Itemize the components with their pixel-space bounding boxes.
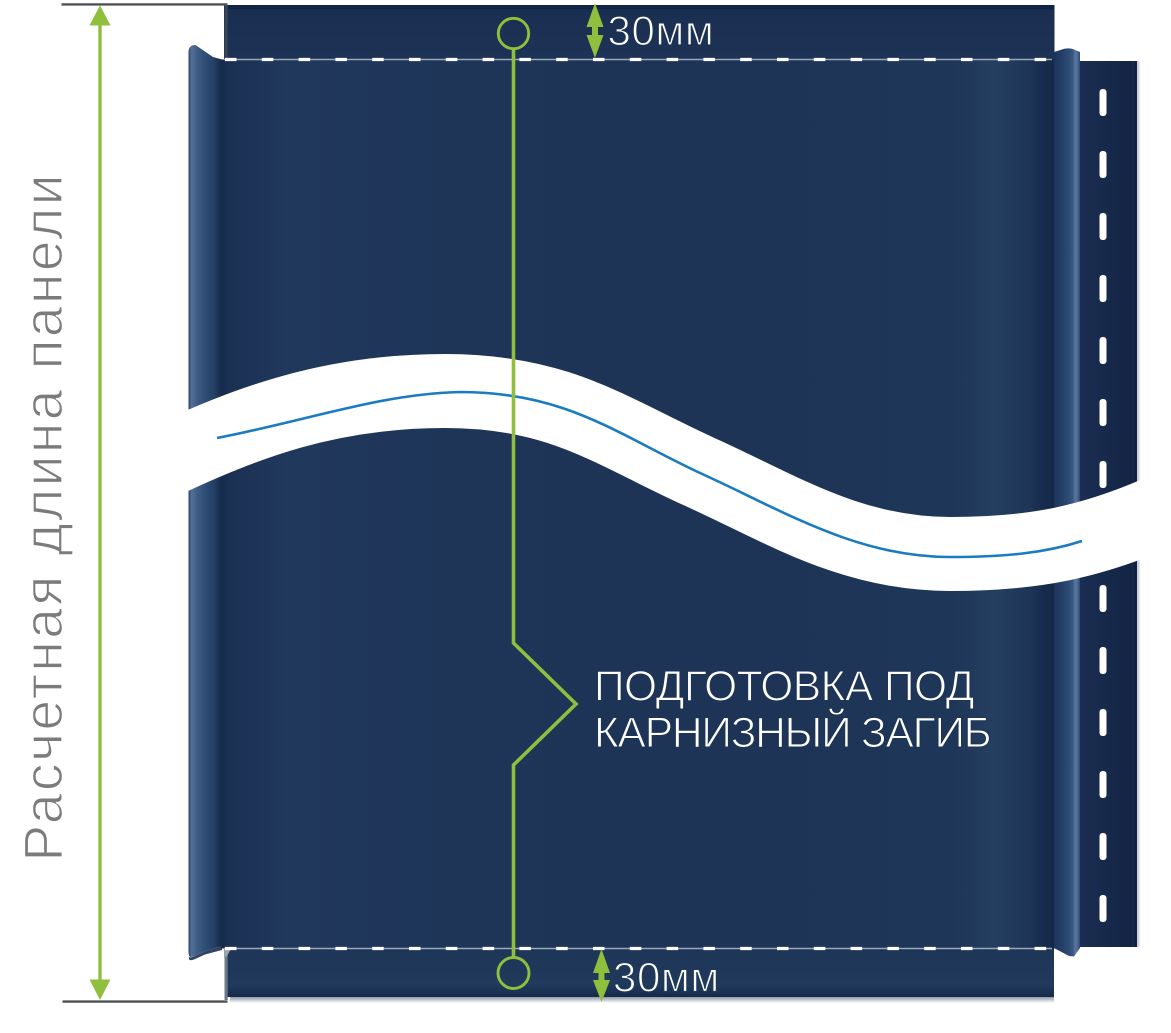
svg-text:Расчетная длина панели: Расчетная длина панели: [12, 172, 74, 861]
svg-text:КАРНИЗНЫЙ ЗАГИБ: КАРНИЗНЫЙ ЗАГИБ: [594, 708, 991, 757]
svg-text:ПОДГОТОВКА ПОД: ПОДГОТОВКА ПОД: [594, 664, 974, 711]
svg-text:30мм: 30мм: [613, 954, 720, 1001]
svg-text:30мм: 30мм: [608, 7, 715, 54]
